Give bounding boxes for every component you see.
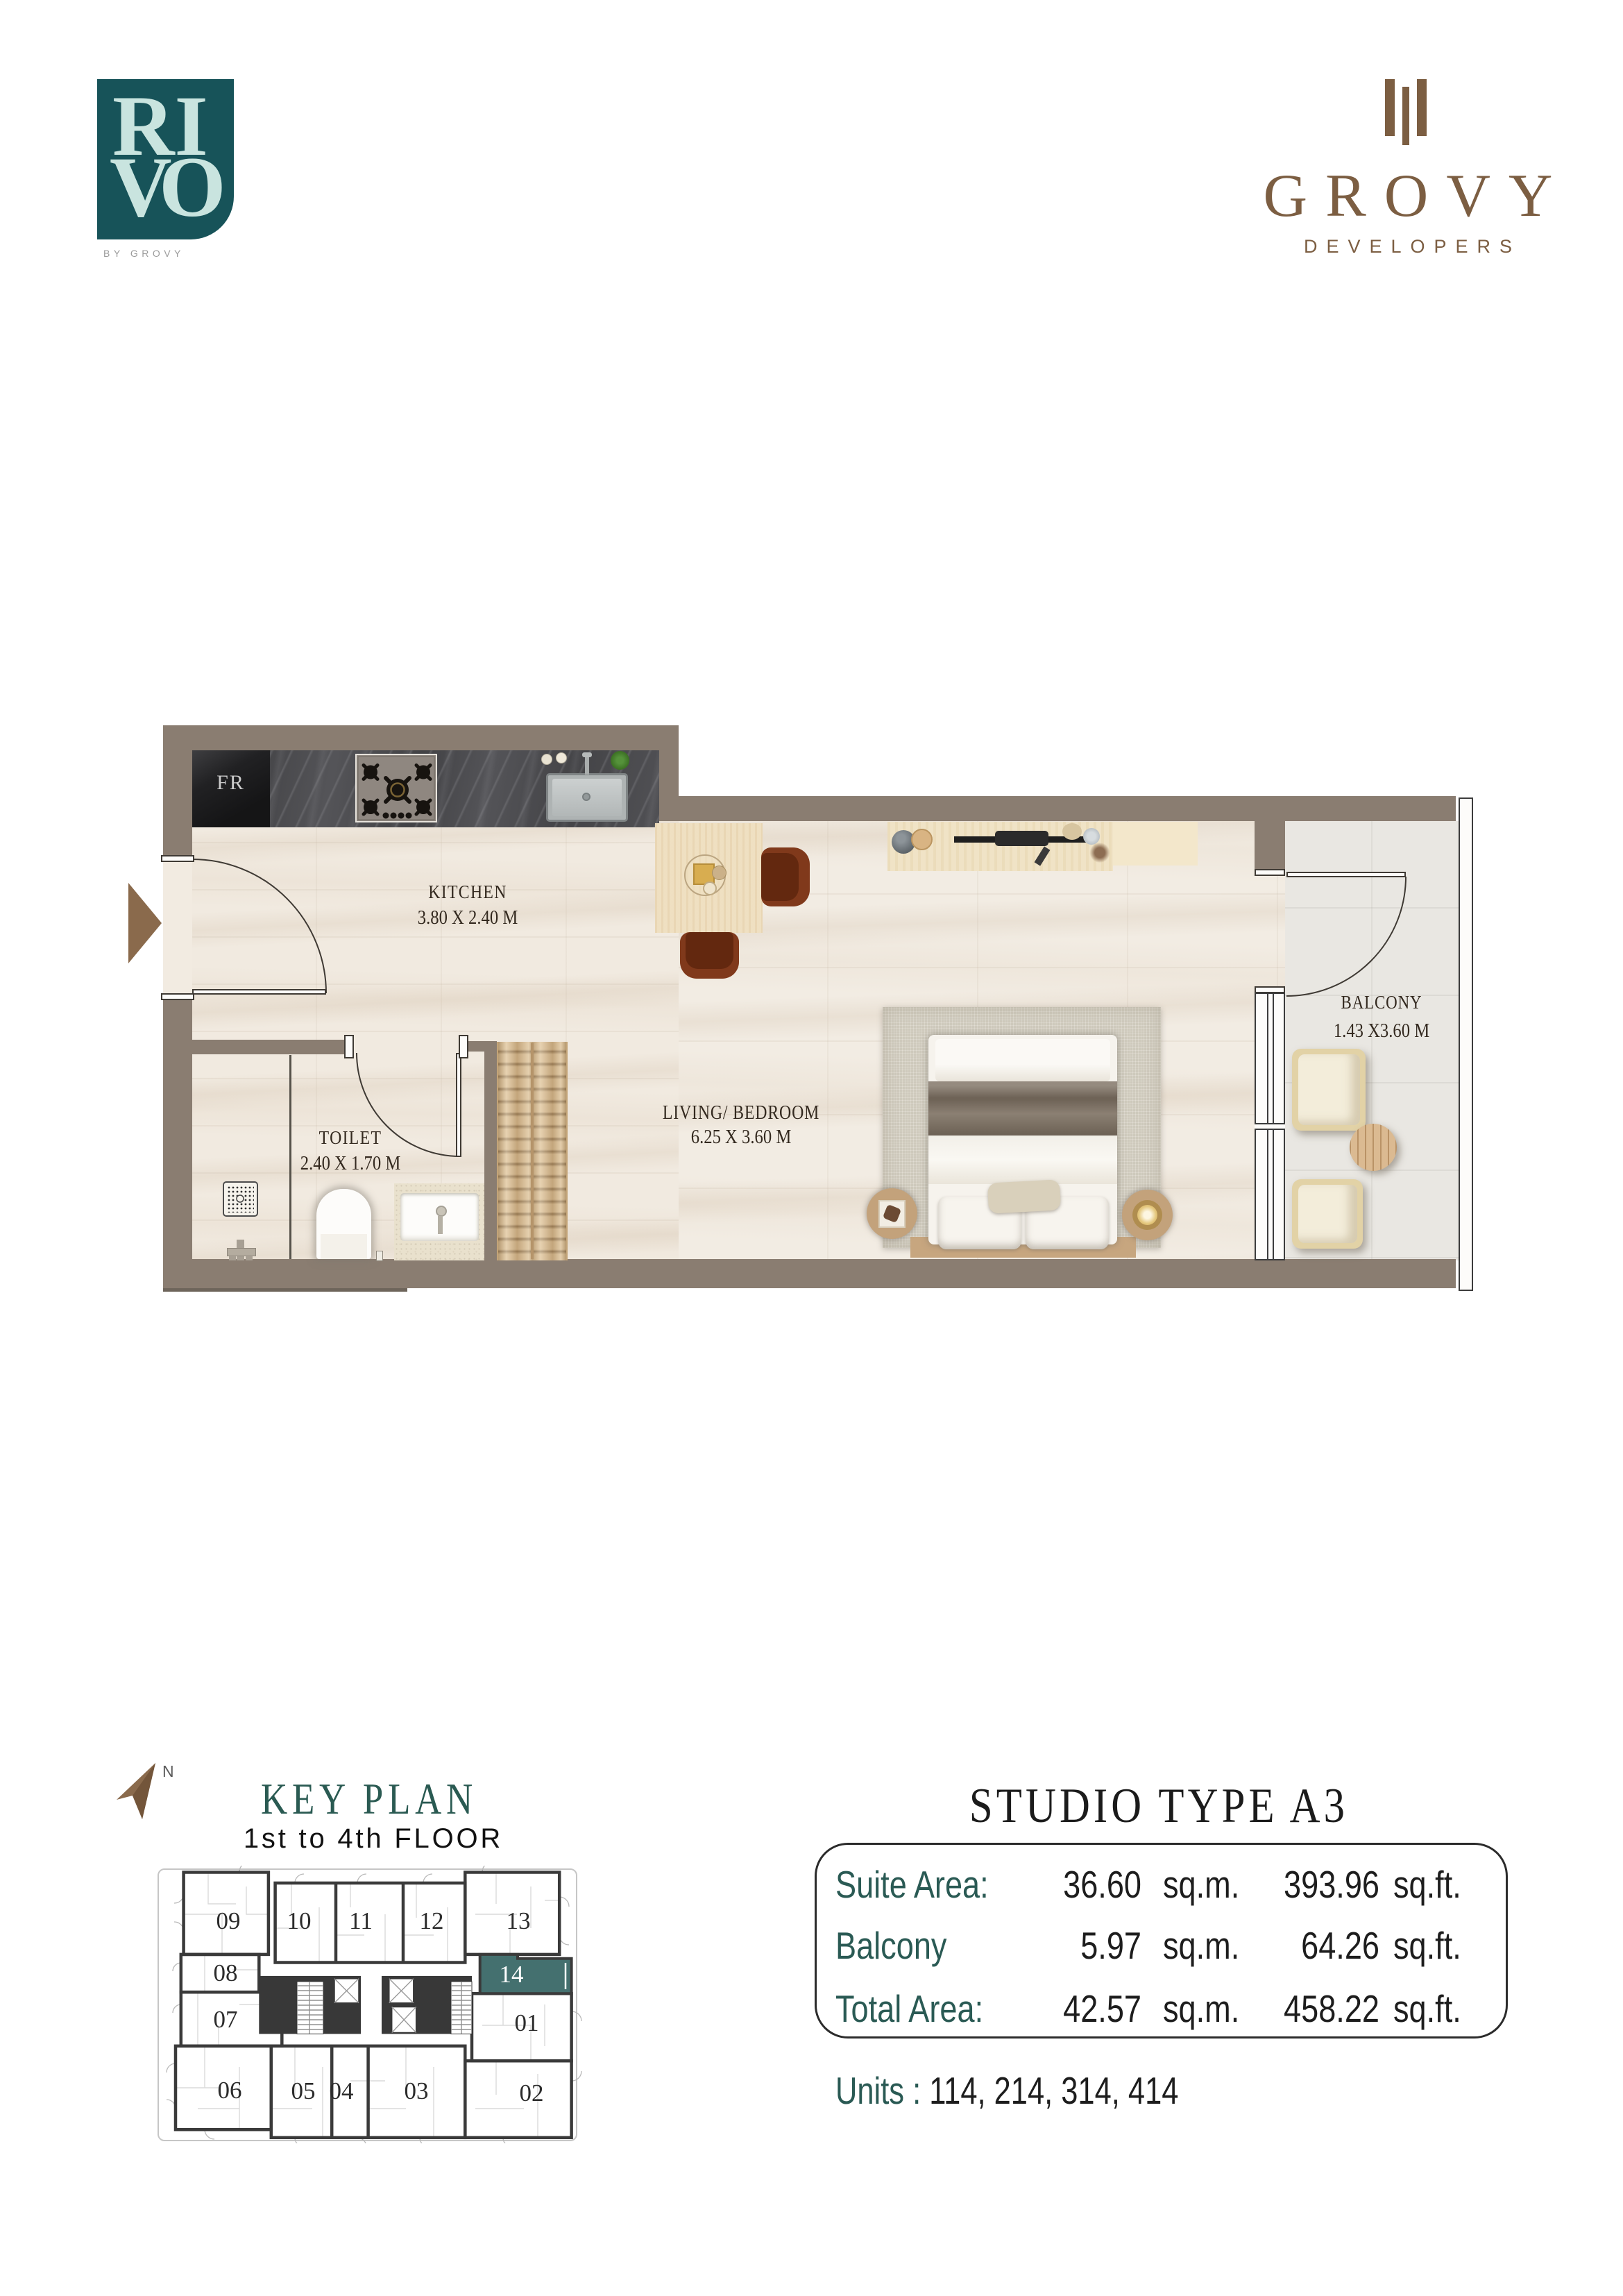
svg-text:N: N [162, 1762, 174, 1780]
svg-text:07: 07 [214, 2006, 238, 2033]
svg-text:12: 12 [420, 1907, 444, 1934]
svg-text:13: 13 [507, 1907, 531, 1934]
svg-text:03: 03 [405, 2077, 429, 2104]
svg-text:14: 14 [500, 1961, 524, 1988]
svg-text:05: 05 [291, 2077, 316, 2104]
svg-text:06: 06 [218, 2077, 242, 2104]
svg-text:11: 11 [349, 1907, 373, 1934]
svg-text:02: 02 [520, 2079, 544, 2107]
svg-text:09: 09 [216, 1907, 241, 1934]
svg-text:04: 04 [330, 2077, 354, 2104]
svg-text:01: 01 [515, 2009, 539, 2036]
svg-text:08: 08 [214, 1959, 238, 1986]
svg-text:10: 10 [287, 1907, 312, 1934]
